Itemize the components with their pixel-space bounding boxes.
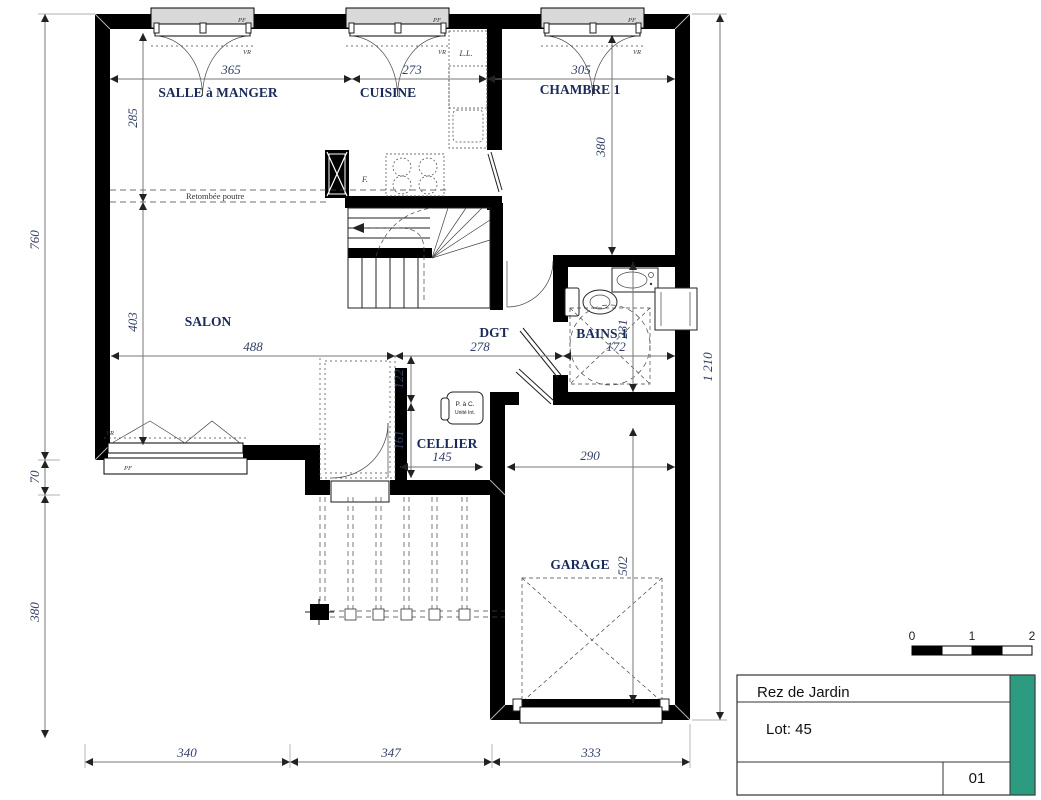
room-labels: SALLE à MANGER CUISINE CHAMBRE 1 SALON D… [158, 82, 628, 572]
dimension-lines [38, 14, 727, 768]
dim-347: 347 [380, 745, 401, 760]
porch-pergola [305, 497, 505, 625]
title-block-accent [1010, 675, 1035, 795]
room-label-dgt: DGT [479, 325, 508, 340]
dim-305: 305 [570, 62, 591, 77]
window-salon: VR PF [104, 421, 247, 474]
dishwasher [453, 110, 483, 142]
heat-pump-unit: P. à C. Unité Int. [441, 392, 483, 424]
dim-285: 285 [125, 108, 140, 128]
dim-172: 172 [606, 339, 626, 354]
fridge-label: F. [361, 175, 368, 184]
dim-380-chambre: 380 [593, 137, 608, 158]
vr-label-4: VR [106, 430, 114, 437]
dim-502: 502 [615, 556, 630, 576]
window-salle-a-manger: PF VR [151, 8, 254, 96]
garage-elements [513, 578, 669, 723]
scale-2: 2 [1029, 629, 1036, 643]
pac-label-2: Unité Int. [455, 410, 475, 416]
room-label-cellier: CELLIER [417, 436, 478, 451]
vr-label-1: VR [243, 49, 251, 56]
dim-365: 365 [220, 62, 241, 77]
pac-label-1: P. à C. [455, 401, 474, 408]
title-block-title: Rez de Jardin [757, 684, 850, 701]
dim-340: 340 [176, 745, 197, 760]
garage-threshold [520, 707, 662, 723]
scale-bar: 0 1 2 [909, 629, 1036, 655]
dim-145: 145 [432, 449, 452, 464]
title-block-sheet: 01 [969, 770, 986, 787]
basin [612, 268, 658, 292]
dim-403: 403 [125, 312, 140, 332]
dim-278: 278 [470, 339, 490, 354]
scale-0: 0 [909, 629, 916, 643]
room-label-chambre1: CHAMBRE 1 [540, 82, 621, 97]
wc-tank [565, 288, 579, 316]
dim-122: 122 [391, 369, 406, 389]
dim-1210: 1 210 [700, 352, 715, 382]
room-label-garage: GARAGE [550, 557, 609, 572]
vr-label-3: VR [633, 49, 641, 56]
room-label-salon: SALON [185, 314, 232, 329]
dim-333: 333 [580, 745, 601, 760]
porch-post [310, 604, 329, 620]
wc-bowl [583, 290, 617, 314]
vr-label-2: VR [438, 49, 446, 56]
title-block-lot: Lot: 45 [766, 721, 812, 738]
dim-760: 760 [27, 230, 42, 250]
garage-door [522, 699, 662, 707]
pf-label-4: PF [123, 465, 133, 472]
dim-161: 161 [391, 430, 406, 450]
window-cuisine: PF VR [346, 8, 449, 96]
floor-plan-page: PF VR PF VR PF VR VR PF [0, 0, 1041, 800]
beam-label: Retombée poutre [186, 191, 245, 201]
room-label-bains1: BAINS 1 [576, 326, 628, 341]
pf-label-2: PF [432, 17, 442, 24]
floor-plan-drawing: PF VR PF VR PF VR VR PF [0, 0, 1041, 800]
dim-70: 70 [27, 470, 42, 484]
room-label-salle-a-manger: SALLE à MANGER [158, 85, 278, 100]
room-label-cuisine: CUISINE [360, 85, 416, 100]
title-block: Rez de Jardin Lot: 45 01 [737, 675, 1035, 795]
entry-closet [320, 356, 395, 478]
washer-label: L.L. [459, 49, 473, 58]
kitchen-fixtures: F. L.L. [325, 31, 487, 198]
pf-label-3: PF [627, 17, 637, 24]
walls [95, 14, 690, 720]
sink [449, 66, 487, 108]
dim-380-left: 380 [27, 602, 42, 623]
dim-488: 488 [243, 339, 263, 354]
pf-label-1: PF [237, 17, 247, 24]
dim-290: 290 [580, 448, 600, 463]
scale-1: 1 [969, 629, 976, 643]
dim-273: 273 [402, 62, 422, 77]
stair-direction-arrow [352, 223, 364, 233]
